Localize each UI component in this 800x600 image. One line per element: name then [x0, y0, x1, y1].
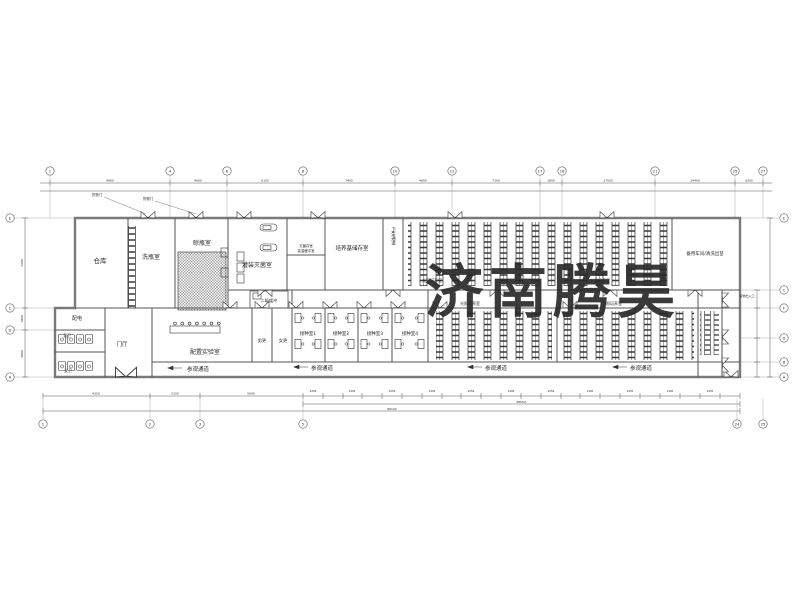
corridor-label-visitor-passage: 参观通道 — [630, 364, 653, 372]
dim-value: 4800 — [20, 350, 24, 358]
corridor-label-visitor-passage: 参观通道 — [485, 364, 508, 372]
grid-bubble-label: 21 — [653, 168, 658, 173]
floor-plan-drawing: 9800 4600 6100 7400 4600 7100 1800 17500… — [0, 0, 800, 600]
entrance-door-icon — [116, 367, 137, 377]
drying-rack-hatch — [178, 252, 226, 310]
dim-value: 2250 — [627, 389, 634, 393]
top-grid-leaders — [50, 176, 763, 218]
dim-value: 7100 — [492, 179, 500, 183]
grid-bubble-label: 25 — [733, 168, 738, 173]
grid-bubble-label: 25 — [761, 421, 766, 426]
grid-bubble-label: C — [9, 305, 12, 310]
dim-value: 1800 — [20, 315, 24, 323]
dim-value: 2250 — [707, 389, 714, 393]
dim-value: 5600 — [247, 392, 255, 396]
dim-value: 2250 — [389, 389, 396, 393]
grid-bubble-label: D — [783, 335, 786, 340]
annotation-cargo-door: 货物门 — [92, 192, 103, 197]
top-grid-bubbles: 1 4 6 8 10 12 17 18 21 25 27 — [46, 167, 767, 175]
dim-value: 7400 — [345, 179, 353, 183]
grid-bubble-label: 18 — [560, 168, 565, 173]
room-label-bottle-washing: 洗瓶室 — [142, 253, 160, 261]
door-icon — [391, 302, 405, 309]
dim-value: 8300 — [745, 179, 753, 183]
sterilizer-icon — [237, 252, 244, 261]
door-icon — [289, 302, 303, 309]
door-icon — [688, 290, 702, 297]
bottle-shelf-ladder — [128, 226, 136, 308]
floor-plan-page: 9800 4600 6100 7400 4600 7100 1800 17500… — [0, 0, 800, 600]
corridor-label-visitor-passage: 参观通道 — [187, 365, 210, 373]
bottom-dimension-band — [43, 393, 763, 419]
room-label-mens-changing: 男更 — [258, 338, 267, 344]
prep-lab-bench — [170, 326, 220, 333]
bottom-grid-bubbles: 1 2 3 5 24 25 — [39, 420, 767, 428]
sterilizer-icon — [237, 274, 244, 283]
dim-value: 14400 — [690, 179, 700, 183]
annotation-cargo-door: 货物门 — [143, 196, 154, 201]
autoclave-icon — [260, 244, 277, 251]
door-icon — [722, 358, 729, 372]
door-icon — [386, 290, 400, 297]
bottom-dim-values: 4350 2100 5600 2250 1400 2250 1400 2250 … — [92, 389, 713, 411]
room-label-inoculation-1: 接种室1 — [300, 330, 316, 337]
grid-bubble-label: 24 — [735, 421, 740, 426]
door-icon — [722, 330, 729, 344]
grid-bubble-label: A — [783, 374, 786, 379]
dim-value: 1800 — [547, 179, 555, 183]
room-label-medium-storage: 培养基储存室 — [335, 244, 369, 252]
dim-value: 2250 — [468, 389, 475, 393]
dim-value: 1400 — [349, 389, 356, 393]
annotation-cargo-exit: 货物出入口 — [739, 293, 754, 298]
room-label-spare-workshop: 备用车间/清洗出苗 — [686, 250, 724, 257]
grid-bubble-label: 10 — [393, 168, 398, 173]
dim-total: 66102 — [387, 407, 397, 411]
dim-value: 7200 — [20, 259, 24, 267]
right-dim-line — [754, 218, 773, 377]
rack-area-right — [700, 311, 719, 355]
grid-bubble-label: D — [9, 327, 12, 332]
room-label-power: 配电 — [72, 315, 82, 322]
dim-value: 1400 — [508, 389, 515, 393]
clean-benches — [295, 314, 424, 349]
dim-value: 1400 — [587, 389, 594, 393]
room-label-high-temp-buffer: 高温缓冲室 — [298, 248, 316, 253]
room-label-sterile-storage: 灭菌存室 — [299, 243, 313, 248]
room-label-womens-changing: 女更 — [279, 337, 288, 344]
autoclave-icon — [260, 224, 277, 231]
dim-value: 1400 — [429, 389, 436, 393]
grid-bubble-label: 17 — [538, 168, 543, 173]
corridor-label-visitor-passage: 参观通道 — [311, 364, 334, 372]
corridor-arrows — [168, 365, 627, 370]
dim-value: 4600 — [194, 179, 202, 183]
dim-value: 9800 — [106, 179, 114, 183]
dim-value: 1400 — [667, 389, 674, 393]
dim-total-sub: 48552 — [516, 400, 526, 404]
grid-bubble-label: C — [783, 287, 786, 292]
door-icon — [357, 302, 371, 309]
room-label-womens-wc: 女卫 — [64, 368, 72, 373]
door-icon — [323, 302, 337, 309]
dim-value: 17500 — [603, 179, 613, 183]
room-label-hall: 门厅 — [116, 340, 128, 348]
dim-value: 2250 — [548, 389, 555, 393]
room-label-inoculation-2: 接种室2 — [333, 330, 349, 337]
room-label-warehouse: 仓库 — [94, 256, 108, 265]
room-label-prep-lab: 配置实验室 — [190, 348, 220, 356]
grid-bubble-label: 27 — [761, 168, 766, 173]
watermark-text: 济南腾昊 — [425, 258, 681, 326]
room-label-inoculation-4: 接种室4 — [402, 330, 418, 337]
top-dim-values: 9800 4600 6100 7400 4600 7100 1800 17500… — [106, 179, 753, 183]
room-label-secondary-buffer: 二级缓冲 — [261, 297, 278, 304]
dim-value: 2100 — [171, 392, 179, 396]
dim-value: 2250 — [310, 389, 317, 393]
door-icon — [722, 293, 729, 307]
dim-value: 4350 — [92, 392, 100, 396]
room-label-mens-wc: 男卫 — [63, 333, 71, 338]
room-label-hygiene-passage: 卫生通道 — [391, 227, 396, 247]
dim-value: 6100 — [261, 179, 269, 183]
bottom-grid-leaders — [43, 399, 763, 419]
grid-bubble-label: F — [783, 305, 785, 310]
grid-bubble-label: 12 — [450, 168, 455, 173]
room-label-filling: 灌装灭菌室 — [242, 261, 272, 269]
left-dim-values: 7200 1800 4800 — [20, 259, 24, 358]
dim-value: 4600 — [419, 179, 427, 183]
grid-bubble-label: A — [9, 374, 12, 379]
room-label-inoculation-3: 接种室3 — [367, 330, 383, 337]
room-label-bottle-drying: 晾瓶室 — [193, 239, 211, 247]
grid-bubble-label: B — [783, 359, 786, 364]
